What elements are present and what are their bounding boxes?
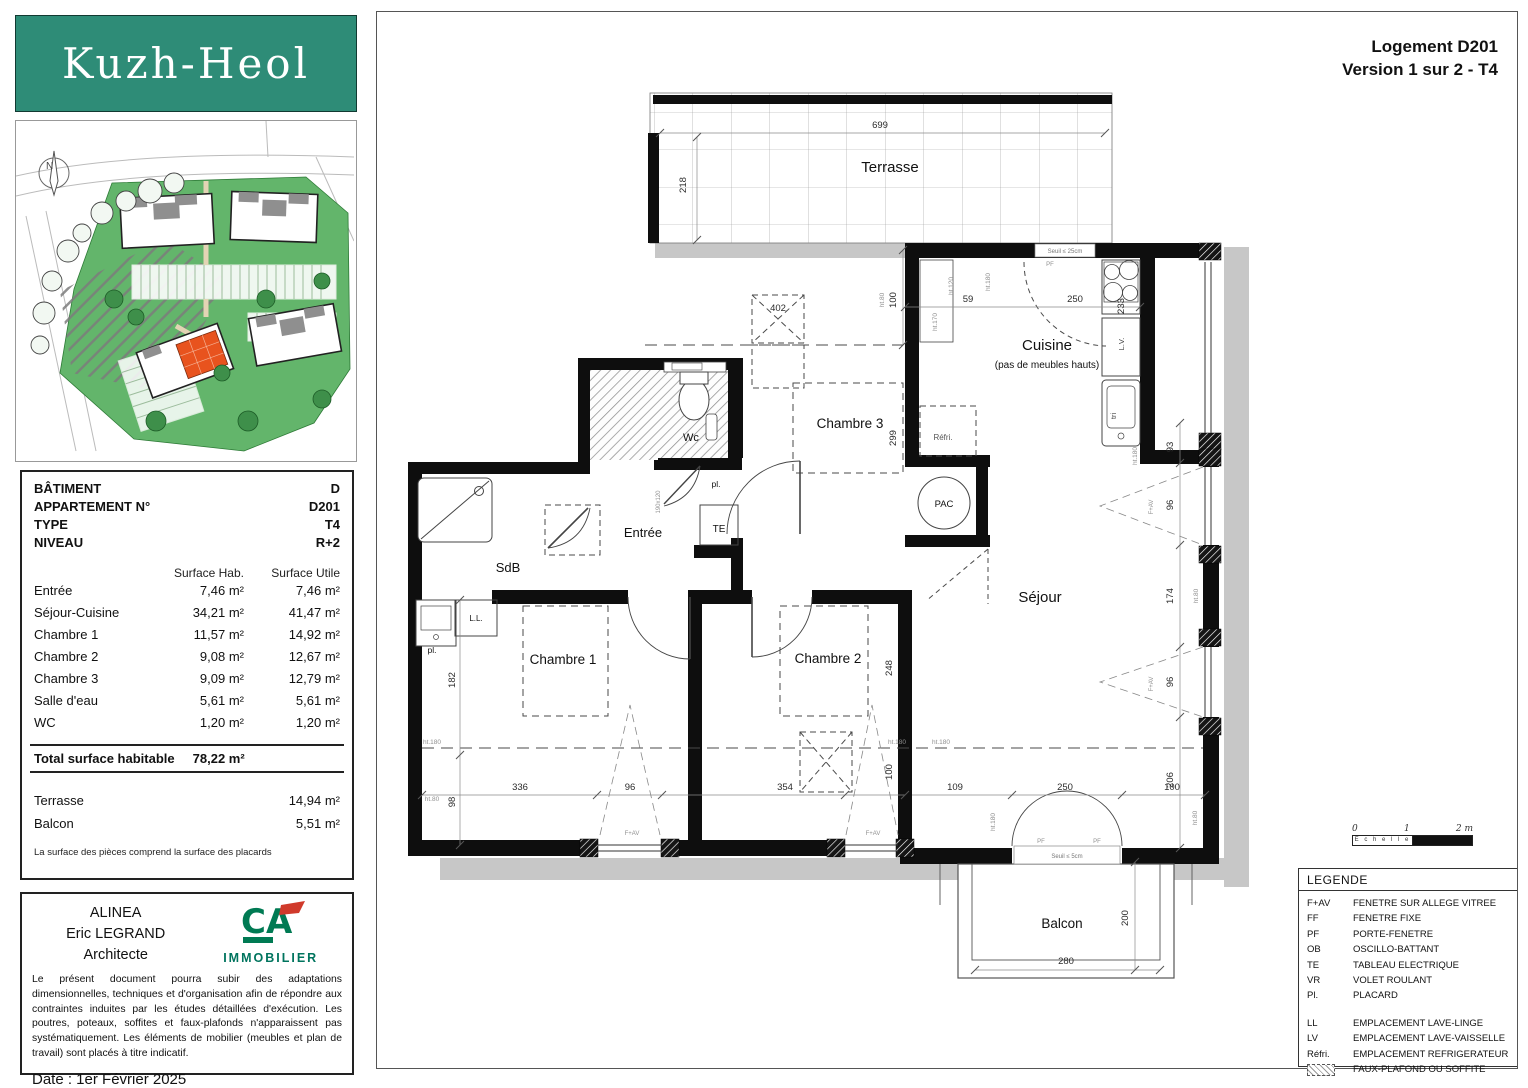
dimension-label-2: 402 [770,303,786,314]
dimension-label-11: 96 [1165,677,1176,688]
dimension-label-4: 59 [963,294,974,305]
dimension-label-17: 354 [777,782,793,793]
dimension-label-0: 699 [872,120,888,131]
dimension-label-15: 336 [512,782,528,793]
note-label-14: ht.170 [932,313,939,331]
room-label-pac: PAC [935,499,954,510]
room-label-entree: Entrée [624,525,662,540]
room-label-terrasse: Terrasse [861,159,919,176]
dimension-label-24: 280 [1058,956,1074,967]
room-label-balcon: Balcon [1041,916,1082,931]
dimension-label-23: 200 [1120,910,1131,926]
dimension-label-1: 218 [678,177,689,193]
walls [408,243,1220,864]
note-label-7: F+AV [625,831,640,837]
note-label-4: PF [1093,839,1101,845]
dimension-label-6: 233 [1116,298,1127,314]
note-label-18: ht.80 [425,796,440,803]
note-label-22: ht.80 [1192,810,1199,825]
room-label-ll: L.L. [469,614,482,623]
note-label-8: F+AV [866,831,881,837]
room-label-sdb: SdB [496,560,521,575]
note-label-15: ht.180 [1132,447,1139,465]
note-label-2: PF [1046,262,1054,268]
dimension-label-18: 248 [884,660,895,676]
dashed-elements [422,262,1203,792]
note-label-6: F+AV [1149,677,1155,692]
note-label-21: ht.180 [990,813,997,831]
dimension-label-5: 250 [1067,294,1083,305]
note-label-9: L.V. [1117,338,1126,351]
note-label-1: Seuil ≤ 5cm [1051,854,1082,860]
dimension-label-22: 100 [1164,782,1180,793]
note-label-13: ht.80 [879,292,886,307]
dimension-label-7: 299 [888,430,899,446]
note-label-0: Seuil ≤ 25cm [1048,249,1083,255]
dimension-label-8: 93 [1165,442,1176,453]
room-label-chambre3: Chambre 3 [817,416,884,431]
note-label-12: ht.180 [985,273,992,291]
note-label-20: ht.180 [932,739,950,746]
dimension-label-9: 96 [1165,500,1176,511]
note-label-10: tri [1109,413,1118,420]
note-label-11: ht.120 [948,277,955,295]
dimension-label-16: 96 [625,782,636,793]
dimension-label-19: 100 [884,764,895,780]
note-label-16: ht.80 [1193,588,1200,603]
room-label-sejour: Séjour [1018,589,1061,606]
room-label-chambre1: Chambre 1 [530,652,597,667]
dimension-label-3: 100 [888,292,899,308]
note-label-19: ht.180 [888,739,906,746]
note-label-5: F+AV [1149,500,1155,515]
dimension-label-10: 174 [1165,588,1176,604]
room-label-te: TE [713,524,726,535]
note-label-17: ht.180 [423,739,441,746]
room-label-wc: Wc [683,432,699,444]
slab-bands [440,243,1249,887]
note-label-3: PF [1037,839,1045,845]
room-label-pl-entree: pl. [712,479,721,489]
floor-plan-drawing: TerrasseCuisine(pas de meubles hauts)Cha… [0,0,1528,1079]
dimension-label-13: 182 [447,672,458,688]
dimension-label-20: 109 [947,782,963,793]
room-label-chambre2: Chambre 2 [795,651,862,666]
room-label-cuisine-note: (pas de meubles hauts) [995,360,1100,371]
room-label-cuisine: Cuisine [1022,337,1072,354]
room-label-refri: Réfri. [933,433,952,442]
dimension-label-14: 98 [447,797,458,808]
dimension-label-21: 250 [1057,782,1073,793]
room-label-pl-chambre1: pl. [428,645,437,655]
note-label-23: 190x120 [656,490,662,514]
